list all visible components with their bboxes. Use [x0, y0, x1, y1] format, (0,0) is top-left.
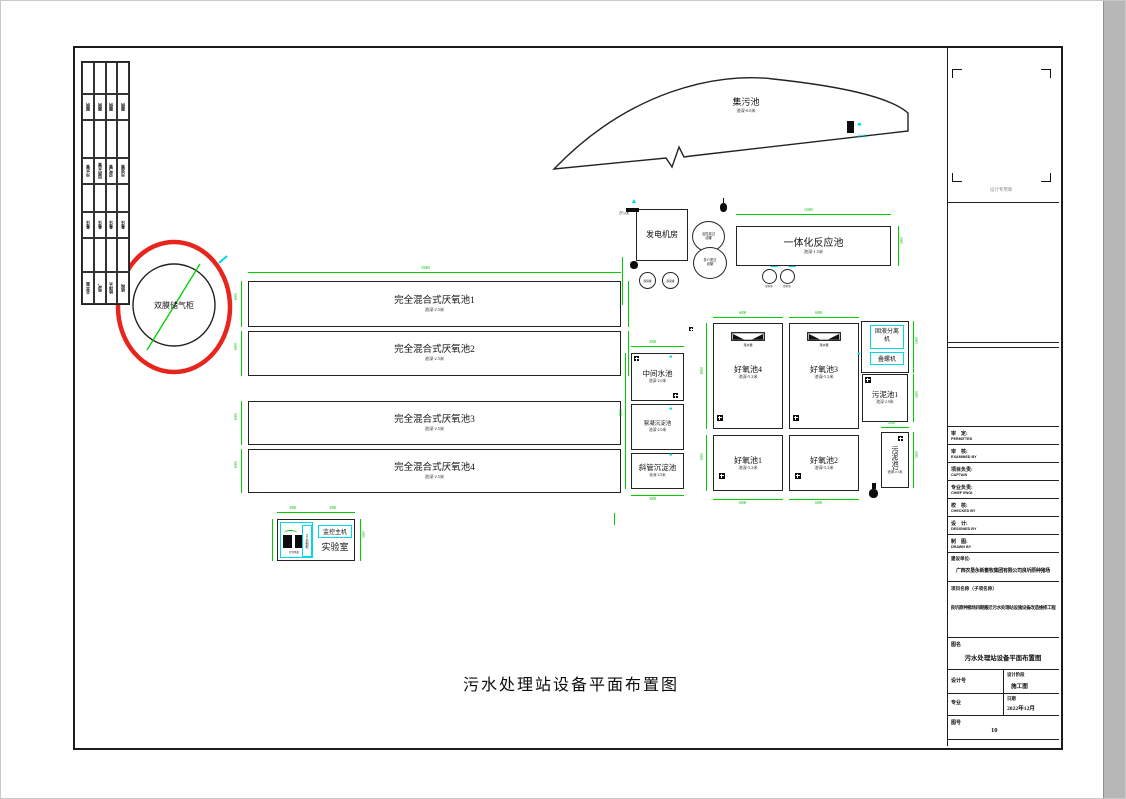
mixer-icon	[634, 356, 639, 361]
legend-cell: 图例	[108, 103, 114, 111]
dim-label: 3000	[329, 506, 336, 510]
major-label: 专业	[951, 699, 961, 706]
aerobic-tank-2-depth: 池深-5.2米	[814, 465, 833, 470]
legend-cell: 结构	[120, 284, 126, 292]
inclined-settling-tank: 斜管沉淀池 池深-2.0米	[631, 453, 684, 489]
tb-row-en: EXAMINED BY	[951, 455, 977, 459]
legend-cell: 备注	[108, 221, 114, 229]
dim-label: 3000	[915, 337, 919, 344]
pump-block-icon	[847, 121, 854, 133]
mixer-icon	[719, 473, 725, 479]
aerobic-tank-1-label: 好氧池1	[734, 456, 762, 465]
dim-label: 3000	[649, 497, 656, 501]
dim-label: 6000	[234, 461, 238, 468]
dim-line	[241, 331, 242, 376]
inclined-settling-depth: 池深-2.0米	[649, 473, 665, 478]
drawing-name: 污水处理站设备平面布置图	[951, 653, 1055, 662]
legend-cell: 电气	[97, 284, 103, 292]
tb-row-cn: 校 核:	[951, 502, 968, 509]
generator-room-label: 发电机房	[646, 230, 678, 239]
dim-label: 33000	[421, 266, 430, 270]
owner-name: 广西农垦永新畜牧集团有限公司良圻原种猪场	[949, 567, 1057, 574]
desulfurizer-label: 脱硫罐	[644, 279, 652, 283]
aerobic-tank-4: 滗水器 好氧池4 池深-5.2米	[713, 323, 783, 429]
design-no-label: 设计号	[951, 677, 966, 684]
tb-row-en: PERMITTED	[951, 437, 972, 441]
aerobic-tank-2-label: 好氧池2	[810, 456, 838, 465]
dim-label: 2000	[888, 421, 895, 425]
desulfurizer-tank: 脱硫罐	[639, 272, 656, 289]
dim-label: 6000	[234, 293, 238, 300]
dim-line	[898, 226, 899, 266]
anaerobic-tank-2-depth: 池深-2.5米	[425, 356, 444, 361]
dim-line	[713, 499, 783, 500]
stage-value: 施工图	[1011, 682, 1028, 690]
sheet-no-value: 10	[991, 727, 998, 734]
sludge-tank-2-label: 污泥池2	[891, 446, 899, 471]
anaerobic-tank-4: 完全混合式厌氧池4 池深-2.5米	[248, 449, 621, 493]
mixer-icon	[717, 415, 723, 421]
dim-line	[614, 513, 615, 525]
screw-press-label: 叠螺机	[878, 354, 896, 363]
legend-cell: 备注	[85, 221, 91, 229]
anaerobic-tank-3: 完全混合式厌氧池3 池深-2.5米	[248, 401, 621, 445]
solid-liquid-separator: 固液分离机	[870, 325, 904, 349]
media-filter-tank: 多介质过滤罐	[693, 247, 727, 279]
pump-stem-icon	[872, 483, 876, 489]
integrated-tank-depth: 池深-1.5米	[804, 249, 823, 254]
aerobic-tank-1: 好氧池1 池深-5.2米	[713, 435, 783, 491]
decanter-icon	[731, 332, 765, 341]
dim-line	[315, 512, 355, 513]
tb-row-cn: 制 图:	[951, 538, 968, 545]
pump-blob-icon	[869, 489, 878, 498]
dim-line	[628, 331, 629, 376]
dim-line	[628, 281, 629, 327]
dim-line	[706, 435, 707, 491]
dim-line	[913, 374, 914, 422]
stage-label: 设计阶段	[1007, 672, 1025, 678]
tb-row-cn: 审 核:	[951, 448, 968, 455]
intermediate-tank-depth: 池深-2.0米	[649, 379, 666, 384]
mixer-icon	[673, 393, 678, 398]
integrated-tank-label: 一体化反应池	[784, 238, 844, 250]
drawing-sheet: 图例 图例 图例 图例 污水管 加药水管 沼气管 污泥管 备注 备注 备注 备注…	[0, 0, 1126, 799]
legend-cell: 污泥管	[120, 165, 126, 177]
dim-line	[622, 257, 623, 305]
valve-icon	[689, 327, 693, 331]
tb-row-cn: 设 计:	[951, 520, 968, 527]
dim-label: 3000	[362, 531, 366, 538]
aerobic-tank-3-label: 好氧池3	[810, 365, 838, 374]
pump-icon: ●●	[669, 407, 670, 412]
desulfurizer-label: 脱硫罐	[667, 279, 675, 283]
mixer-icon	[865, 377, 871, 383]
pump-icon: ●●	[857, 352, 858, 357]
generator-room: 发电机房	[636, 209, 688, 261]
plc-cabinet-label: PLC控制柜	[305, 534, 309, 549]
aerobic-tank-4-label: 好氧池4	[734, 365, 762, 374]
legend-cell: 图例	[85, 103, 91, 111]
monitor-host-label: 监控主机	[323, 527, 347, 536]
anaerobic-tank-3-label: 完全混合式厌氧池3	[394, 415, 475, 426]
collection-pump-label: 提升泵	[847, 135, 877, 138]
dim-line	[913, 321, 914, 373]
tb-row-en: CHIEF ENGI.	[951, 491, 973, 495]
dim-line	[789, 317, 859, 318]
legend-cell: 加药水管	[97, 163, 103, 179]
dim-line	[631, 346, 684, 347]
dim-label: 3000	[915, 391, 919, 398]
legend-cell: 备注	[97, 221, 103, 229]
decanter-label: 滗水器	[819, 343, 828, 347]
dim-label: 5000	[700, 453, 704, 460]
lift-pump-label: 提升泵	[776, 286, 798, 289]
integrated-reaction-tank: 一体化反应池 池深-1.5米	[736, 226, 891, 266]
collection-tank-outline	[554, 78, 908, 169]
owner-label: 建设单位:	[951, 556, 971, 562]
anaerobic-tank-2: 完全混合式厌氧池2 池深-2.5米	[248, 331, 621, 376]
inclined-settling-label: 斜管沉淀池	[639, 464, 677, 473]
legend-cell: 给排水	[108, 282, 114, 294]
tb-row-en: DESIGNED BY	[951, 527, 976, 531]
collection-tank-depth: 池深-6.0米	[706, 109, 786, 114]
flare-label: 沼气火炬	[609, 213, 639, 216]
anaerobic-tank-4-depth: 池深-2.5米	[425, 474, 444, 479]
legend-strip: 图例 图例 图例 图例 污水管 加药水管 沼气管 污泥管 备注 备注 备注 备注…	[81, 61, 130, 305]
tb-row-cn: 专业负责:	[951, 484, 973, 491]
drawing-name-label: 图名	[951, 641, 961, 648]
blower-icon	[283, 535, 292, 548]
dim-label: 12000	[804, 208, 813, 212]
dim-label: 6000	[739, 311, 746, 315]
stamp-corner-mark	[952, 69, 962, 78]
dim-line	[631, 495, 684, 496]
legend-cell: 沼气管	[108, 165, 114, 177]
dim-line	[360, 519, 361, 561]
anaerobic-tank-2-label: 完全混合式厌氧池2	[394, 345, 475, 356]
sludge-tank-2-depth: 池深-2.5米	[887, 470, 902, 474]
dim-line	[248, 272, 621, 273]
mixer-icon	[898, 436, 903, 441]
dim-line	[789, 499, 859, 500]
date-label: 日期	[1007, 696, 1016, 702]
dim-label: 6000	[234, 343, 238, 350]
separator-label: 固液分离机	[875, 329, 899, 345]
dim-line	[241, 449, 242, 493]
screw-press: 叠螺机	[870, 352, 904, 365]
dim-label: 3000	[289, 506, 296, 510]
intermediate-tank-label: 中间水池	[643, 370, 673, 379]
stamp-corner-mark	[952, 173, 962, 182]
dim-line	[881, 427, 909, 428]
vent-tick	[219, 256, 227, 263]
project-label: 项目名称（子项名称）	[951, 586, 997, 592]
dim-line	[277, 512, 315, 513]
plc-cabinet: PLC控制柜	[302, 525, 312, 557]
sludge-tank-1-label: 污泥池1	[872, 391, 898, 400]
dim-label: 6000	[739, 501, 746, 505]
stamp-note: 设计专用章	[969, 187, 1033, 192]
lab-label: 实验室	[318, 542, 352, 552]
gas-holder-label: 双膜储气柜	[137, 301, 211, 310]
aerobic-tank-1-depth: 池深-5.2米	[738, 465, 757, 470]
pump-icon: ●●	[669, 453, 670, 458]
dim-line	[736, 214, 891, 215]
dim-label: 6000	[815, 501, 822, 505]
legend-cell: 备注	[120, 221, 126, 229]
aerobic-tank-4-depth: 池深-5.2米	[738, 374, 757, 379]
dim-label: 3000	[900, 237, 904, 244]
dim-line	[241, 281, 242, 327]
desulfurizer-tank: 脱硫罐	[662, 272, 679, 289]
aerobic-tank-2: 好氧池2 池深-5.2米	[789, 435, 859, 491]
dim-label: 3500	[915, 451, 919, 458]
aerobic-tank-3-depth: 池深-5.2米	[814, 374, 833, 379]
dim-line	[625, 353, 626, 489]
media-filter-label: 多介质过滤罐	[703, 259, 718, 267]
dim-line	[272, 519, 273, 561]
mixer-icon	[793, 415, 799, 421]
anaerobic-tank-3-depth: 池深-2.5米	[425, 426, 444, 431]
sludge-tank-1-depth: 池深-2.0米	[876, 400, 893, 405]
dim-line	[713, 317, 783, 318]
flare-flame-icon: ▲	[628, 197, 640, 205]
tb-row-cn: 审 定:	[951, 430, 968, 437]
pump-icon: ●●	[857, 122, 859, 128]
carbon-filter-label: 活性炭过滤罐	[701, 233, 716, 241]
dim-label: 3000	[649, 340, 656, 344]
sheet-no-label: 图号	[951, 719, 961, 726]
dim-line	[913, 432, 914, 488]
pump-blob-icon	[630, 261, 638, 269]
legend-cell: 图例	[97, 103, 103, 111]
anaerobic-tank-4-label: 完全混合式厌氧池4	[394, 463, 475, 474]
airflow-arc-icon	[284, 530, 297, 536]
anaerobic-tank-1: 完全混合式厌氧池1 池深-2.5米	[248, 281, 621, 327]
mixer-blob-icon	[720, 203, 727, 212]
legend-cell: 总平面	[85, 282, 91, 294]
aerobic-tank-3: 滗水器 好氧池3 池深-5.2米	[789, 323, 859, 429]
tb-row-cn: 项目负责:	[951, 466, 973, 473]
date-value: 2022年12月	[1007, 704, 1035, 712]
dim-line	[241, 401, 242, 445]
dim-label: 8000	[619, 409, 623, 416]
collection-tank-label: 集污池	[706, 97, 786, 107]
decanter-label: 滗水器	[743, 343, 752, 347]
stamp-corner-mark	[1041, 69, 1051, 78]
lift-pump-circle	[762, 269, 777, 284]
anaerobic-tank-1-depth: 池深-2.5米	[425, 307, 444, 312]
tb-row-en: CHECKED BY	[951, 509, 975, 513]
pump-icon: ●●	[669, 355, 670, 360]
legend-cell: 污水管	[85, 165, 91, 177]
project-name: 良圻原种猪场四期搬迁污水处理站设施设备改造维修工程	[947, 605, 1059, 611]
stamp-corner-mark	[1041, 173, 1051, 182]
drawing-main-title: 污水处理站设备平面布置图	[451, 677, 691, 695]
dim-label: 8000	[700, 367, 704, 374]
flocculation-tank: 絮凝沉淀池 池深-2.0米	[631, 404, 684, 450]
lift-pump-circle	[780, 269, 795, 284]
tb-row-en: CAPTAIN	[951, 473, 967, 477]
mixer-icon	[795, 473, 801, 479]
dim-label: 6000	[234, 413, 238, 420]
anaerobic-tank-1-label: 完全混合式厌氧池1	[394, 296, 475, 307]
flocculation-tank-depth: 池深-2.0米	[649, 428, 666, 433]
monitor-host-box: 监控主机	[318, 525, 352, 538]
dim-line	[706, 323, 707, 429]
dim-label: 6000	[815, 311, 822, 315]
sludge-tank-2: 污泥池2 池深-2.5米	[881, 432, 909, 488]
decanter-icon	[807, 332, 841, 341]
legend-cell: 图例	[120, 103, 126, 111]
tb-row-en: DRAWN BY	[951, 545, 971, 549]
